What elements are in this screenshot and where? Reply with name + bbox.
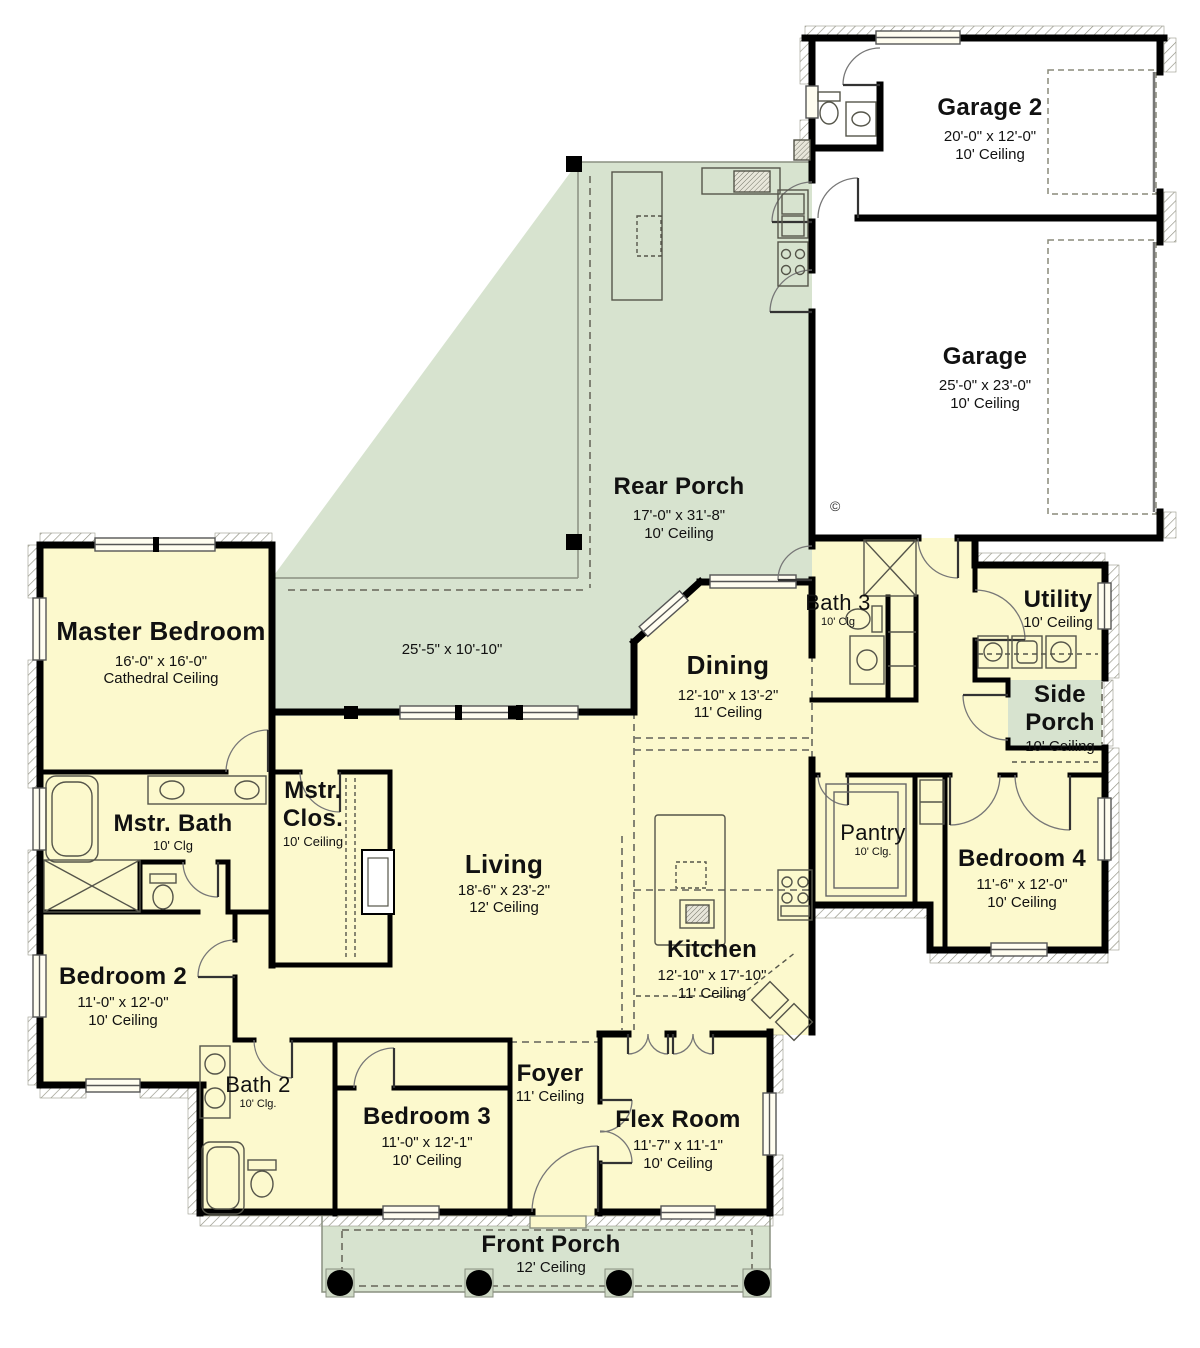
garage-bath-fixtures xyxy=(818,92,876,136)
room-dims: 12'-10" x 13'-2" xyxy=(678,687,779,705)
room-label-master-bedroom: Master Bedroom 16'-0" x 16'-0" Cathedral… xyxy=(56,616,265,688)
room-dims: 20'-0" x 12'-0" xyxy=(937,128,1042,146)
room-name: Bath 2 xyxy=(225,1072,290,1098)
room-ceiling: 10' Ceiling xyxy=(59,1012,187,1030)
room-name: Foyer xyxy=(516,1060,584,1088)
room-label-rear-porch: Rear Porch 17'-0" x 31'-8" 10' Ceiling xyxy=(613,473,744,543)
room-ceiling: 10' Clg xyxy=(113,838,232,853)
room-dims: 11'-6" x 12'-0" xyxy=(958,876,1086,894)
room-ceiling: 10' Clg. xyxy=(225,1098,290,1111)
floor-plan: Garage 2 20'-0" x 12'-0" 10' Ceiling Gar… xyxy=(0,0,1200,1348)
room-ceiling: 10' Clg xyxy=(805,616,870,629)
grill-icon xyxy=(734,171,770,192)
room-name: Mstr. Bath xyxy=(113,810,232,838)
room-name: Dining xyxy=(678,650,779,681)
room-ceiling: 10' Ceiling xyxy=(939,395,1031,413)
room-label-bedroom2: Bedroom 2 11'-0" x 12'-0" 10' Ceiling xyxy=(59,963,187,1030)
room-ceiling: 10' Ceiling xyxy=(267,834,359,849)
room-name: Bedroom 2 xyxy=(59,963,187,991)
room-label-foyer: Foyer 11' Ceiling xyxy=(516,1060,584,1106)
room-dims: 11'-0" x 12'-0" xyxy=(59,994,187,1012)
room-name: Living xyxy=(458,849,550,880)
room-dims: 17'-0" x 31'-8" xyxy=(613,507,744,525)
room-ceiling: Cathedral Ceiling xyxy=(56,670,265,688)
room-dims: 18'-6" x 23'-2" xyxy=(458,882,550,900)
copyright-symbol: © xyxy=(830,498,840,514)
room-name: Bedroom 3 xyxy=(363,1103,491,1131)
fireplace-niche xyxy=(362,850,394,914)
room-dims: 11'-0" x 12'-1" xyxy=(363,1134,491,1152)
room-dims: 16'-0" x 16'-0" xyxy=(56,653,265,671)
garage-door-clearances xyxy=(1048,70,1156,514)
room-name: Pantry xyxy=(840,820,905,846)
room-name: Master Bedroom xyxy=(56,616,265,647)
room-name: Bath 3 xyxy=(805,590,870,616)
room-ceiling: 10' Ceiling xyxy=(1005,738,1115,756)
room-dims: 12'-10" x 17'-10" xyxy=(658,967,767,985)
room-dims: 11'-7" x 11'-1" xyxy=(615,1137,740,1155)
room-label-front-porch: Front Porch 12' Ceiling xyxy=(481,1231,620,1277)
room-label-bath2: Bath 2 10' Clg. xyxy=(225,1072,290,1111)
room-label-bath3: Bath 3 10' Clg xyxy=(805,590,870,629)
toilet xyxy=(818,92,840,101)
room-label-kitchen: Kitchen 12'-10" x 17'-10" 11' Ceiling xyxy=(658,936,767,1003)
room-label-garage2: Garage 2 20'-0" x 12'-0" 10' Ceiling xyxy=(937,94,1042,164)
room-name: Utility xyxy=(1023,586,1093,614)
room-ceiling: 10' Ceiling xyxy=(615,1155,740,1173)
room-name: Bedroom 4 xyxy=(958,845,1086,873)
room-label-mstr-bath: Mstr. Bath 10' Clg xyxy=(113,810,232,854)
room-ceiling: 10' Ceiling xyxy=(958,894,1086,912)
room-label-utility: Utility 10' Ceiling xyxy=(1023,586,1093,632)
room-label-bedroom4: Bedroom 4 11'-6" x 12'-0" 10' Ceiling xyxy=(958,845,1086,912)
sink xyxy=(846,102,876,136)
room-label-bedroom3: Bedroom 3 11'-0" x 12'-1" 10' Ceiling xyxy=(363,1103,491,1170)
room-ceiling: 10' Ceiling xyxy=(1023,614,1093,632)
room-ceiling: 10' Ceiling xyxy=(363,1152,491,1170)
room-name: Front Porch xyxy=(481,1231,620,1259)
room-label-pantry: Pantry 10' Clg. xyxy=(840,820,905,859)
room-ceiling: 10' Ceiling xyxy=(937,146,1042,164)
island-sink xyxy=(686,905,709,923)
room-ceiling: 11' Ceiling xyxy=(658,985,767,1003)
room-dims: 25'-5" x 10'-10" xyxy=(402,641,503,659)
room-name: Side Porch xyxy=(1005,681,1115,738)
room-name: Mstr. Clos. xyxy=(267,777,359,834)
room-label-garage: Garage 25'-0" x 23'-0" 10' Ceiling xyxy=(939,343,1031,413)
room-dims: 25'-0" x 23'-0" xyxy=(939,377,1031,395)
room-label-dining: Dining 12'-10" x 13'-2" 11' Ceiling xyxy=(678,650,779,722)
room-label-side-porch: Side Porch 10' Ceiling xyxy=(1005,681,1115,755)
room-label-mstr-clos: Mstr. Clos. 10' Ceiling xyxy=(267,777,359,849)
rear-porch-extension-dims: 25'-5" x 10'-10" xyxy=(402,641,503,659)
room-name: Garage 2 xyxy=(937,94,1042,122)
room-name: Garage xyxy=(939,343,1031,371)
front-door-landing xyxy=(530,1216,586,1228)
room-label-living: Living 18'-6" x 23'-2" 12' Ceiling xyxy=(458,849,550,917)
room-ceiling: 12' Ceiling xyxy=(481,1259,620,1277)
room-name: Rear Porch xyxy=(613,473,744,501)
room-ceiling: 10' Ceiling xyxy=(613,525,744,543)
room-ceiling: 11' Ceiling xyxy=(516,1088,584,1106)
room-label-flex-room: Flex Room 11'-7" x 11'-1" 10' Ceiling xyxy=(615,1106,740,1173)
room-ceiling: 11' Ceiling xyxy=(678,704,779,722)
room-ceiling: 12' Ceiling xyxy=(458,899,550,917)
room-name: Kitchen xyxy=(658,936,767,964)
room-ceiling: 10' Clg. xyxy=(840,846,905,859)
room-name: Flex Room xyxy=(615,1106,740,1134)
